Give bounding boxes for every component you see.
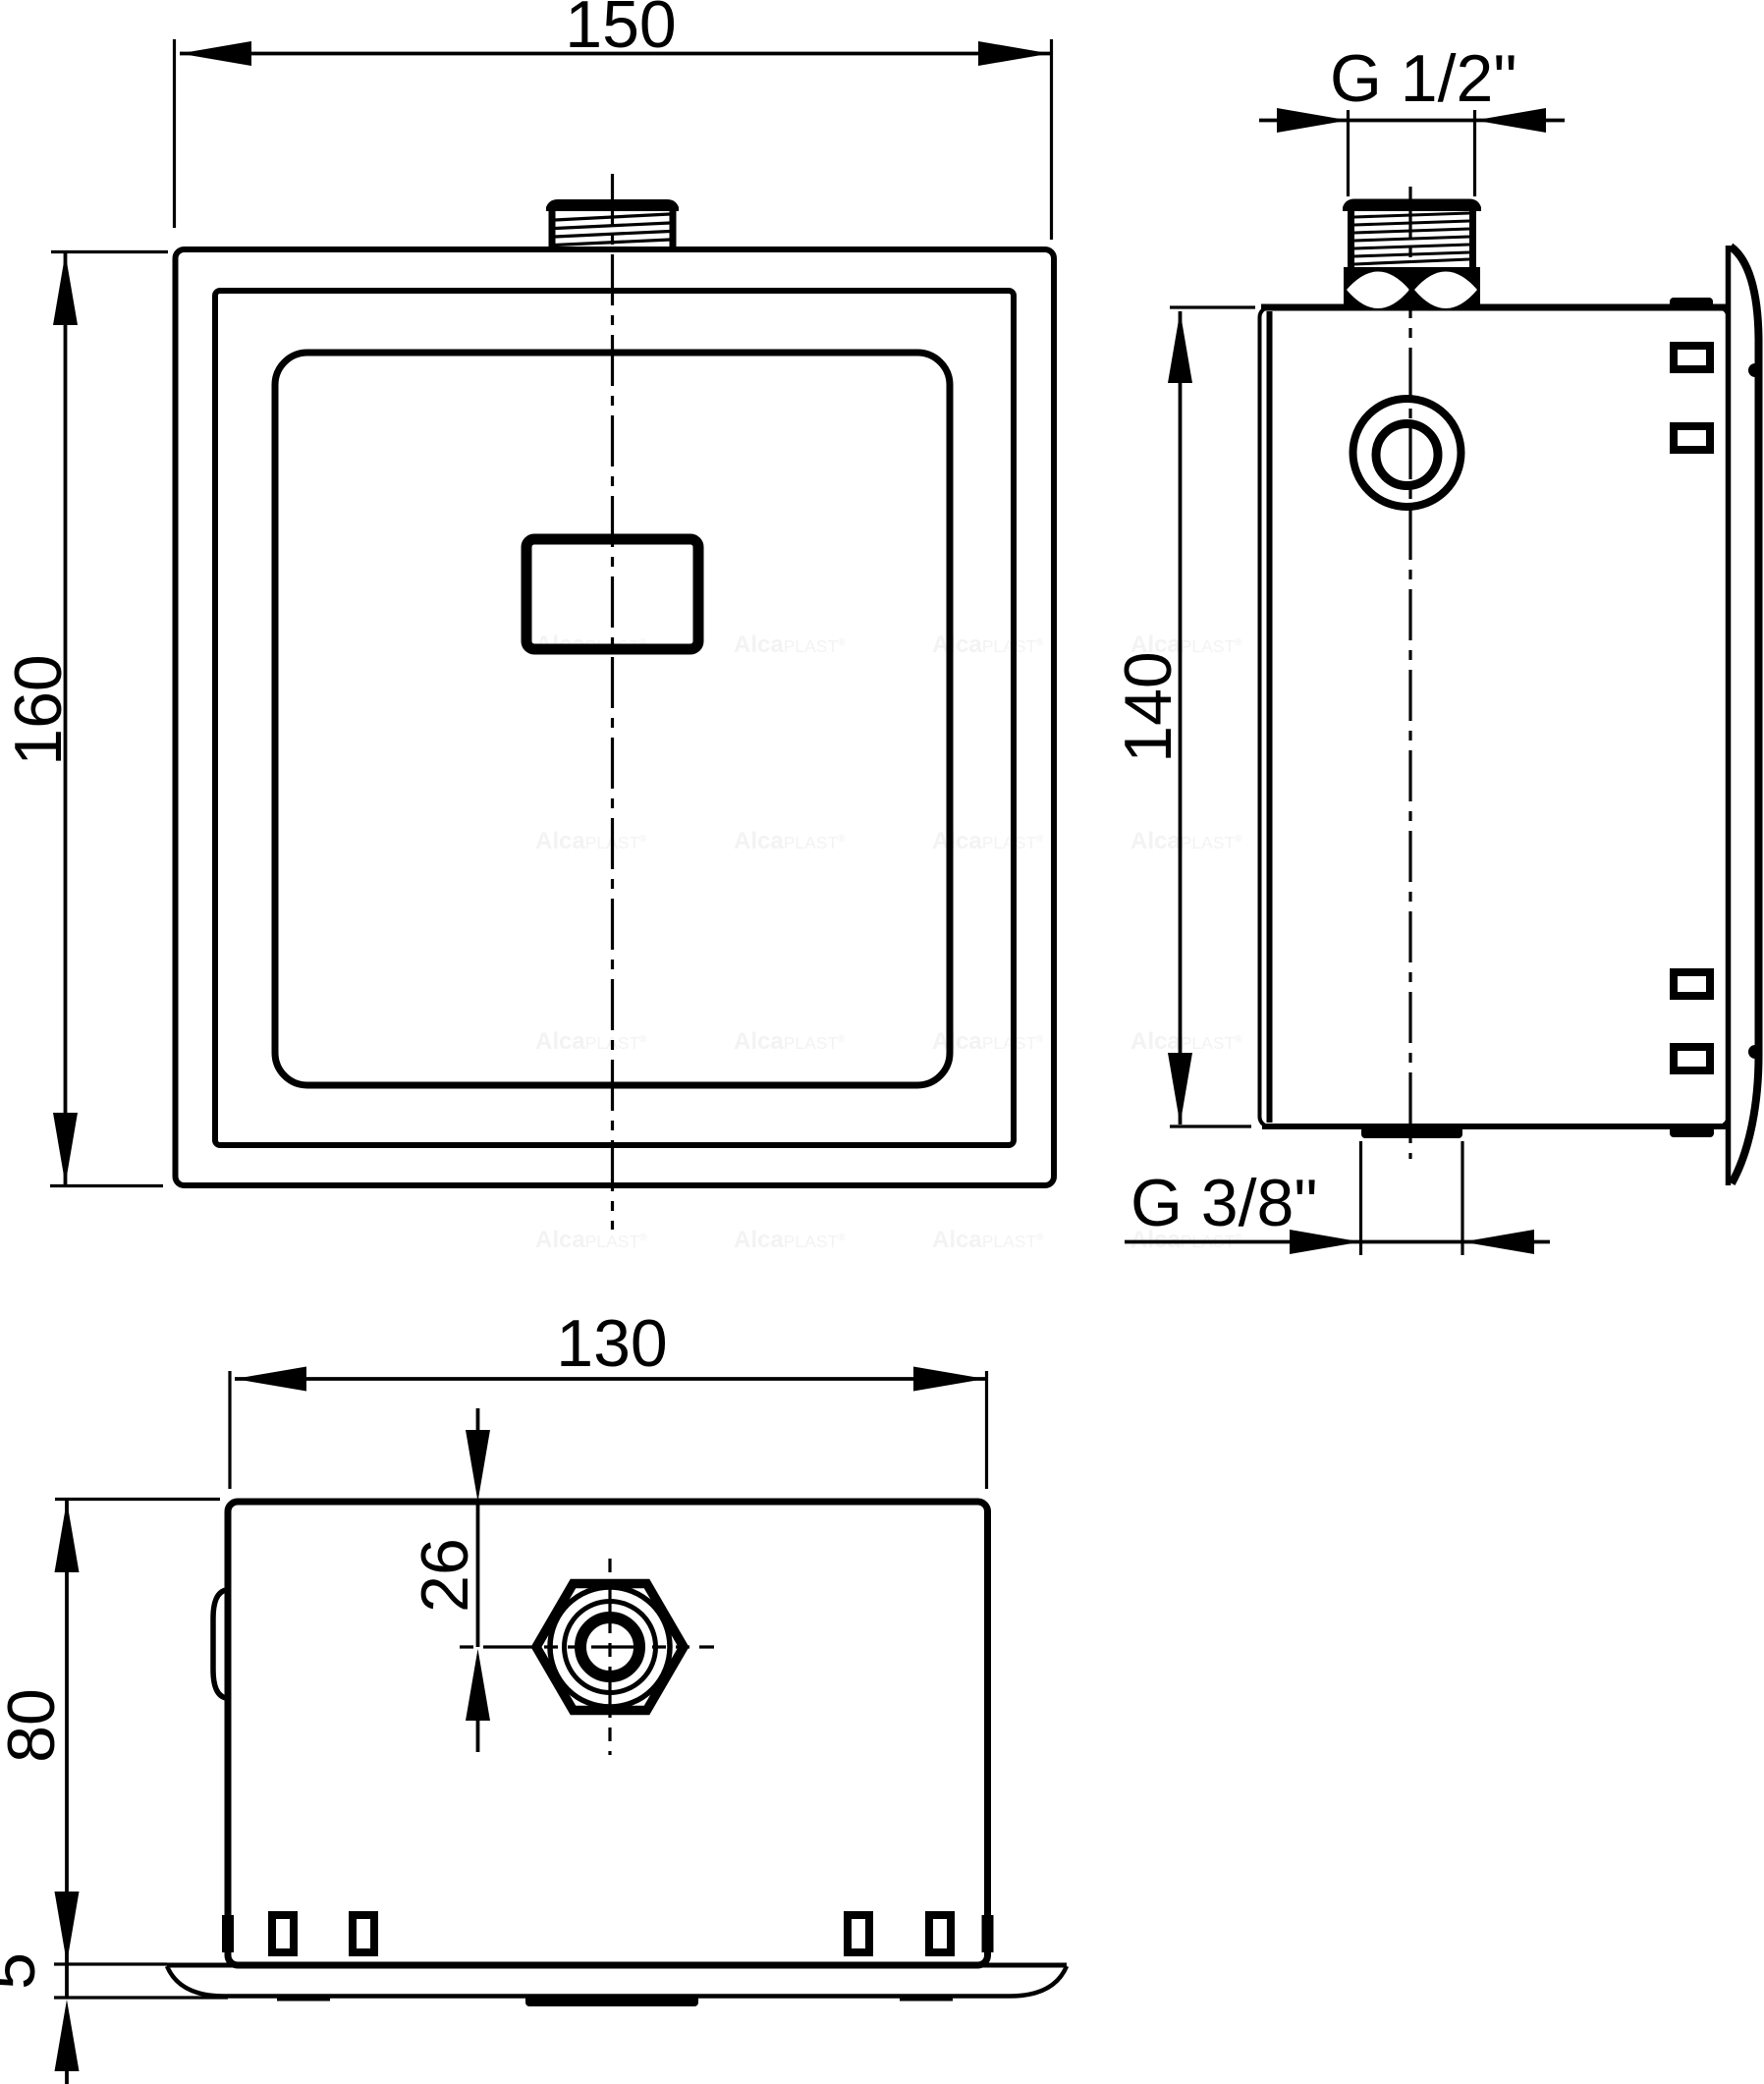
svg-text:80: 80 [0,1688,69,1763]
svg-text:160: 160 [1,654,76,765]
svg-text:130: 130 [556,1306,667,1381]
svg-text:G 3/8": G 3/8" [1130,1166,1317,1240]
svg-text:140: 140 [1111,651,1185,762]
svg-text:G 1/2": G 1/2" [1330,41,1516,116]
svg-text:5: 5 [0,1952,49,1990]
svg-text:150: 150 [565,0,676,62]
svg-text:26: 26 [408,1538,482,1613]
